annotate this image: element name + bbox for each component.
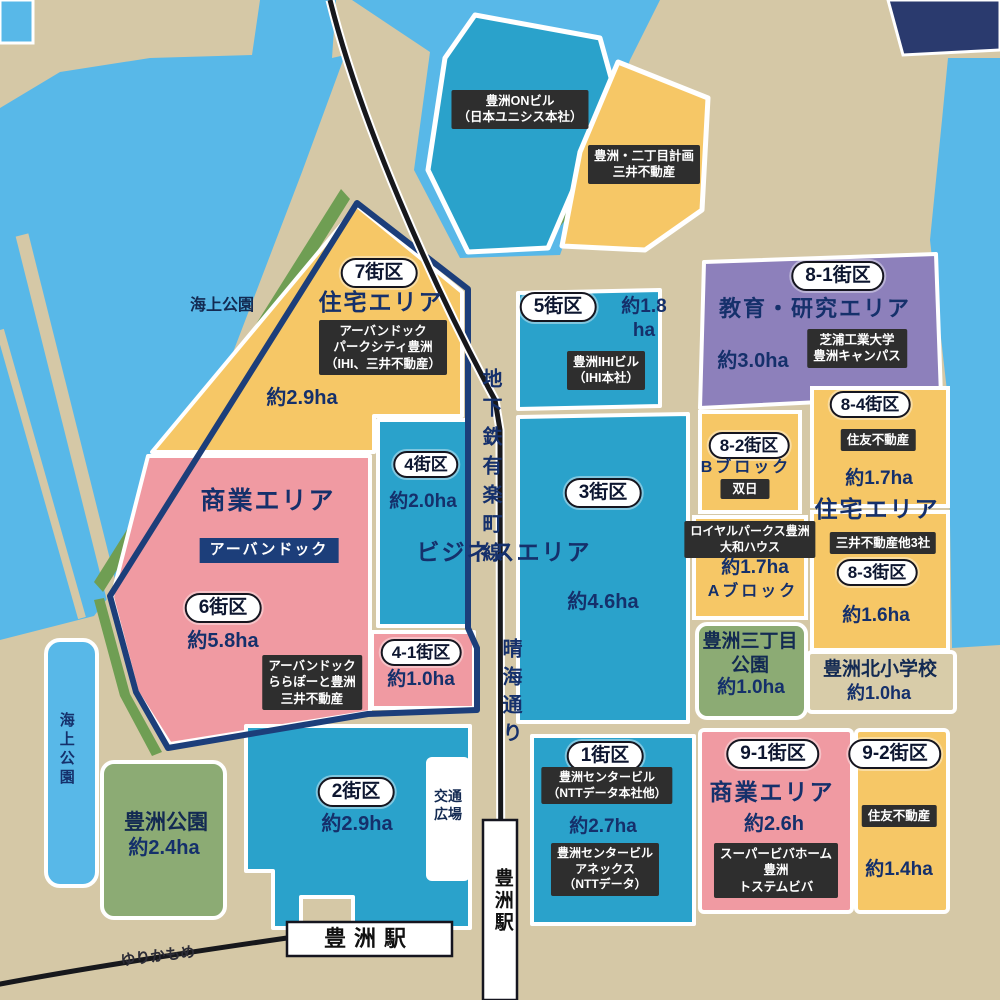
kaijo-park-label-south: 海上公園 [56,712,75,788]
traffic-plaza-label: 交通 広場 [434,788,462,823]
district-7-area-label: 約2.9ha [266,386,337,411]
toyosu-park-area-label: 約2.4ha [128,836,199,861]
district-8-3-pill: 8-3街区 [837,559,918,586]
district-8-4-area-label: 約1.7ha [845,467,913,491]
district-9-1-pill: 9-1街区 [726,739,819,769]
district-3-area-label: 約4.6ha [567,590,638,615]
toyosu-station-label-vertical: 豊洲駅 [490,868,514,934]
district-5-pill: 5街区 [520,292,597,322]
district-8-2-pill: 8-2街区 [709,432,790,459]
district-9-1-tenant-label: スーパービバホーム 豊洲 トステムビバ [714,843,838,898]
district-7-tenant-label: アーバンドック パークシティ豊洲 （IHI、三井不動産） [319,320,447,375]
corner-water-northwest [0,0,33,43]
kaijo-park-label-north: 海上公園 [190,296,254,316]
district-1-tenant-1-label: 豊洲センタービル （NTTデータ本社他） [541,767,672,804]
a-block-area-label: 約1.7ha [721,556,789,580]
sanchome-park-name-label: 豊洲三丁目 公園 [702,630,797,678]
district-4-1-area-label: 約1.0ha [387,668,455,692]
district-8-1-type-label: 教育・研究エリア [719,295,911,323]
district-7-type-label: 住宅エリア [319,288,444,317]
district-6-pill: 6街区 [185,593,262,623]
district-8-4-tenant-label: 住友不動産 [841,429,916,451]
kita-school-area-label: 約1.0ha [847,682,911,705]
district-6-tenant-label: アーバンドック ららぽーと豊洲 三井不動産 [262,655,362,710]
kita-school-name-label: 豊洲北小学校 [823,658,937,682]
district-9-1-type-label: 商業エリア [710,778,835,807]
district-4-1-pill: 4-1街区 [381,639,462,666]
harumi-street-label: 晴海通り [497,638,522,750]
district-3-region [518,414,688,722]
district-9-2-pill: 9-2街区 [848,739,941,769]
business-area-label: ビジネスエリア [417,538,592,567]
corner-block-northeast [888,0,1000,55]
residential-area-east-label: 住宅エリア [815,495,940,524]
district-9-1-area-label: 約2.6h [744,812,804,837]
district-8-2-tenant-label: 双日 [720,479,769,499]
district-3-pill: 3街区 [565,478,642,508]
district-8-4-pill: 8-4街区 [830,391,911,418]
district-6-type-label: 商業エリア [200,486,335,517]
toyosu-station-label-horizontal: 豊洲駅 [324,925,414,953]
district-8-1-tenant-label: 芝浦工業大学 豊洲キャンパス [807,329,907,368]
nichome-project-label: 豊洲・二丁目計画 三井不動産 [588,145,700,184]
district-1-area-label: 約2.7ha [569,815,637,839]
district-9-2-area-label: 約1.4ha [865,858,933,882]
district-5-area-label: 約1.8 ha [621,295,666,343]
district-8-2-b-block-label: Bブロック [701,458,792,478]
district-2-area-label: 約2.9ha [321,812,392,837]
district-6-area-label: 約5.8ha [187,629,258,654]
district-8-3-area-label: 約1.6ha [842,604,910,628]
a-block-label: Aブロック [708,582,799,602]
district-4-area-label: 約2.0ha [389,490,457,514]
district-7-pill: 7街区 [341,258,418,288]
district-4-pill: 4街区 [393,451,458,478]
unisys-building-label: 豊洲ONビル （日本ユニシス本社） [451,90,588,129]
district-1-tenant-2-label: 豊洲センタービル アネックス （NTTデータ） [551,843,659,896]
toyosu-district-map: 海上公園 海上公園 豊洲ONビル （日本ユニシス本社） 豊洲・二丁目計画 三井不… [0,0,1000,1000]
district-9-2-tenant-label: 住友不動産 [862,805,937,827]
a-block-tenant-label: ロイヤルパークス豊洲 大和ハウス [684,521,815,558]
district-8-1-pill: 8-1街区 [791,261,884,291]
district-2-pill: 2街区 [318,777,395,807]
sanchome-park-area-label: 約1.0ha [717,676,785,700]
urban-dock-badge: アーバンドック [200,538,339,563]
mitsui-3-companies-label: 三井不動産他3社 [830,532,936,554]
toyosu-park-name-label: 豊洲公園 [124,810,208,836]
district-8-1-area-label: 約3.0ha [717,349,788,374]
district-5-tenant-label: 豊洲IHIビル （IHI本社） [567,351,645,390]
